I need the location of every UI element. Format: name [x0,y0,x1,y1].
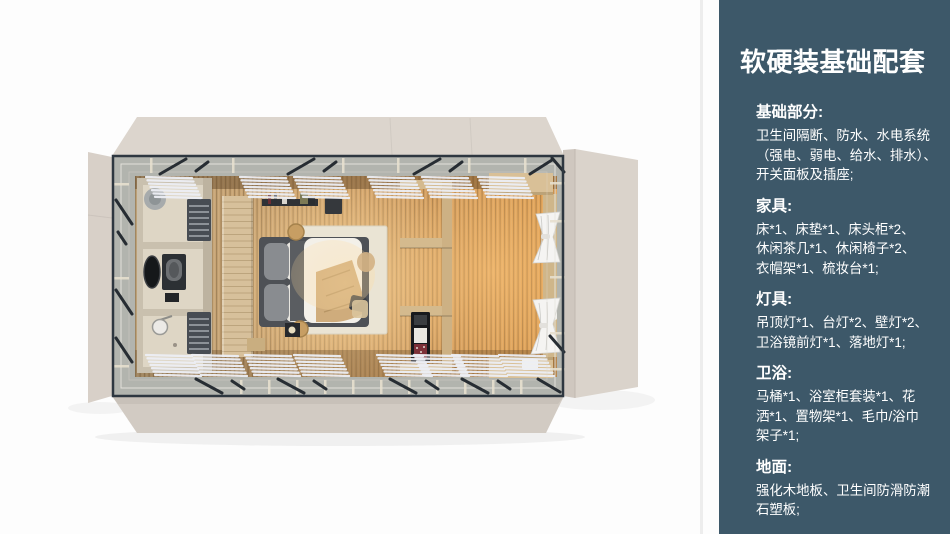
floor-cushion [352,300,368,318]
pillow [264,284,289,321]
sidebar-sections: 基础部分: 卫生间隔断、防水、水电系统 （强电、弱电、给水、排水）、 开关面板及… [756,102,942,520]
bed [259,224,387,337]
section-heading: 卫浴: [756,363,942,384]
section-body: 强化木地板、卫生间防滑防潮 石塑板; [756,481,942,520]
section-heading: 地面: [756,457,942,478]
section-body: 吊顶灯*1、台灯*2、壁灯*2、 卫浴镜前灯*1、落地灯*1; [756,313,942,352]
section-lighting: 灯具: 吊顶灯*1、台灯*2、壁灯*2、 卫浴镜前灯*1、落地灯*1; [756,289,942,352]
section-heading: 家具: [756,196,942,217]
section-furniture: 家具: 床*1、床垫*1、床头柜*2、 休闲茶几*1、休闲椅子*2、 衣帽架*1… [756,196,942,279]
bathroom-pod [137,178,212,373]
floorplan-render [0,0,719,534]
section-heading: 灯具: [756,289,942,310]
stool [247,338,265,351]
section-bathroom: 卫浴: 马桶*1、浴室柜套装*1、花 洒*1、置物架*1、毛巾/浴巾 架子*1; [756,363,942,446]
section-body: 马桶*1、浴室柜套装*1、花 洒*1、置物架*1、毛巾/浴巾 架子*1; [756,387,942,446]
towel-radiator-top [187,199,211,241]
basket [288,224,304,240]
towel-radiator-bottom [187,312,211,354]
section-body: 卫生间隔断、防水、水电系统 （强电、弱电、给水、排水）、 开关面板及插座; [756,126,942,185]
sidebar-title: 软硬装基础配套 [740,46,938,78]
info-sidebar: 软硬装基础配套 基础部分: 卫生间隔断、防水、水电系统 （强电、弱电、给水、排水… [719,0,950,534]
section-body: 床*1、床垫*1、床头柜*2、 休闲茶几*1、休闲椅子*2、 衣帽架*1、梳妆台… [756,220,942,279]
nightstand [285,323,300,337]
pillow [264,243,289,280]
slide-page: 软硬装基础配套 基础部分: 卫生间隔断、防水、水电系统 （强电、弱电、给水、排水… [0,0,950,534]
section-heading: 基础部分: [756,102,942,123]
canvas-edge-line [700,0,703,534]
dried-plant [357,252,375,272]
floorplan-canvas [0,0,719,534]
section-basics: 基础部分: 卫生间隔断、防水、水电系统 （强电、弱电、给水、排水）、 开关面板及… [756,102,942,185]
section-flooring: 地面: 强化木地板、卫生间防滑防潮 石塑板; [756,457,942,520]
